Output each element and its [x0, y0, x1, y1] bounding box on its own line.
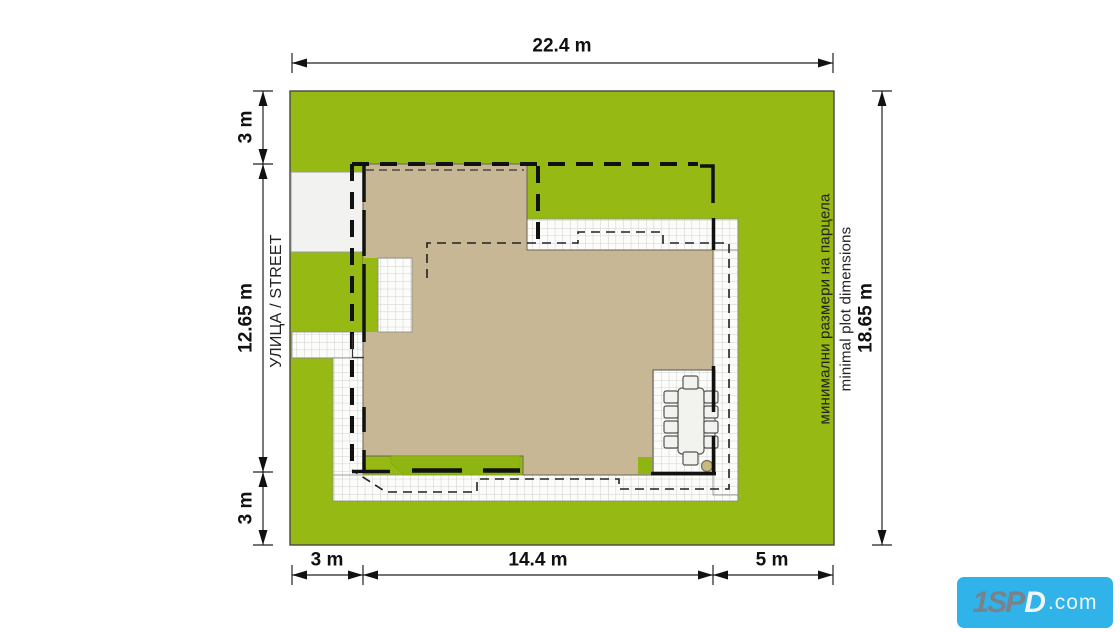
dim-label-bottom-mid: 14.4 m	[508, 551, 567, 570]
street-label: УЛИЦА / STREET	[269, 234, 285, 367]
plant-pot	[702, 461, 713, 472]
paved-path-left	[333, 358, 363, 476]
chair	[664, 421, 678, 433]
chair	[704, 391, 718, 403]
dim-label-left-top: 3 m	[237, 111, 256, 144]
site-plan-page: 22.4 m 3 m 12.65 m 3 m 3 m 14.4 m 5 m 18…	[0, 0, 1120, 632]
chair	[704, 421, 718, 433]
dim-label-bottom-right: 5 m	[756, 551, 789, 570]
driveway	[291, 172, 363, 252]
recess-paving	[378, 258, 412, 332]
watermark-tld: .com	[1048, 591, 1098, 615]
dim-label-left-mid: 12.65 m	[237, 283, 256, 353]
dim-label-top: 22.4 m	[532, 37, 591, 56]
watermark-logo[interactable]: 1SP D .com	[957, 577, 1113, 628]
entrance-recess	[363, 258, 412, 332]
chair	[664, 391, 678, 403]
paved-path-bottom	[333, 475, 738, 501]
dim-label-left-bottom: 3 m	[237, 492, 256, 525]
watermark-brand-part1: 1SP	[973, 586, 1024, 620]
dim-label-right: 18.65 m	[857, 283, 876, 353]
paved-path-right	[713, 250, 738, 495]
chair	[683, 376, 698, 389]
watermark-brand-part2: D	[1024, 586, 1045, 620]
dining-table	[678, 388, 704, 454]
chair	[704, 406, 718, 418]
dim-label-bottom-left: 3 m	[311, 551, 344, 570]
paved-path-top-right	[527, 219, 738, 250]
chair	[664, 406, 678, 418]
canopy-strip-end	[638, 457, 652, 474]
site-plan-drawing	[0, 0, 1120, 632]
chair	[683, 452, 698, 465]
annotation-english: minimal plot dimensions	[839, 227, 854, 392]
chair	[704, 436, 718, 448]
annotation-bulgarian: минимални размери на парцела	[818, 193, 833, 424]
chair	[664, 436, 678, 448]
